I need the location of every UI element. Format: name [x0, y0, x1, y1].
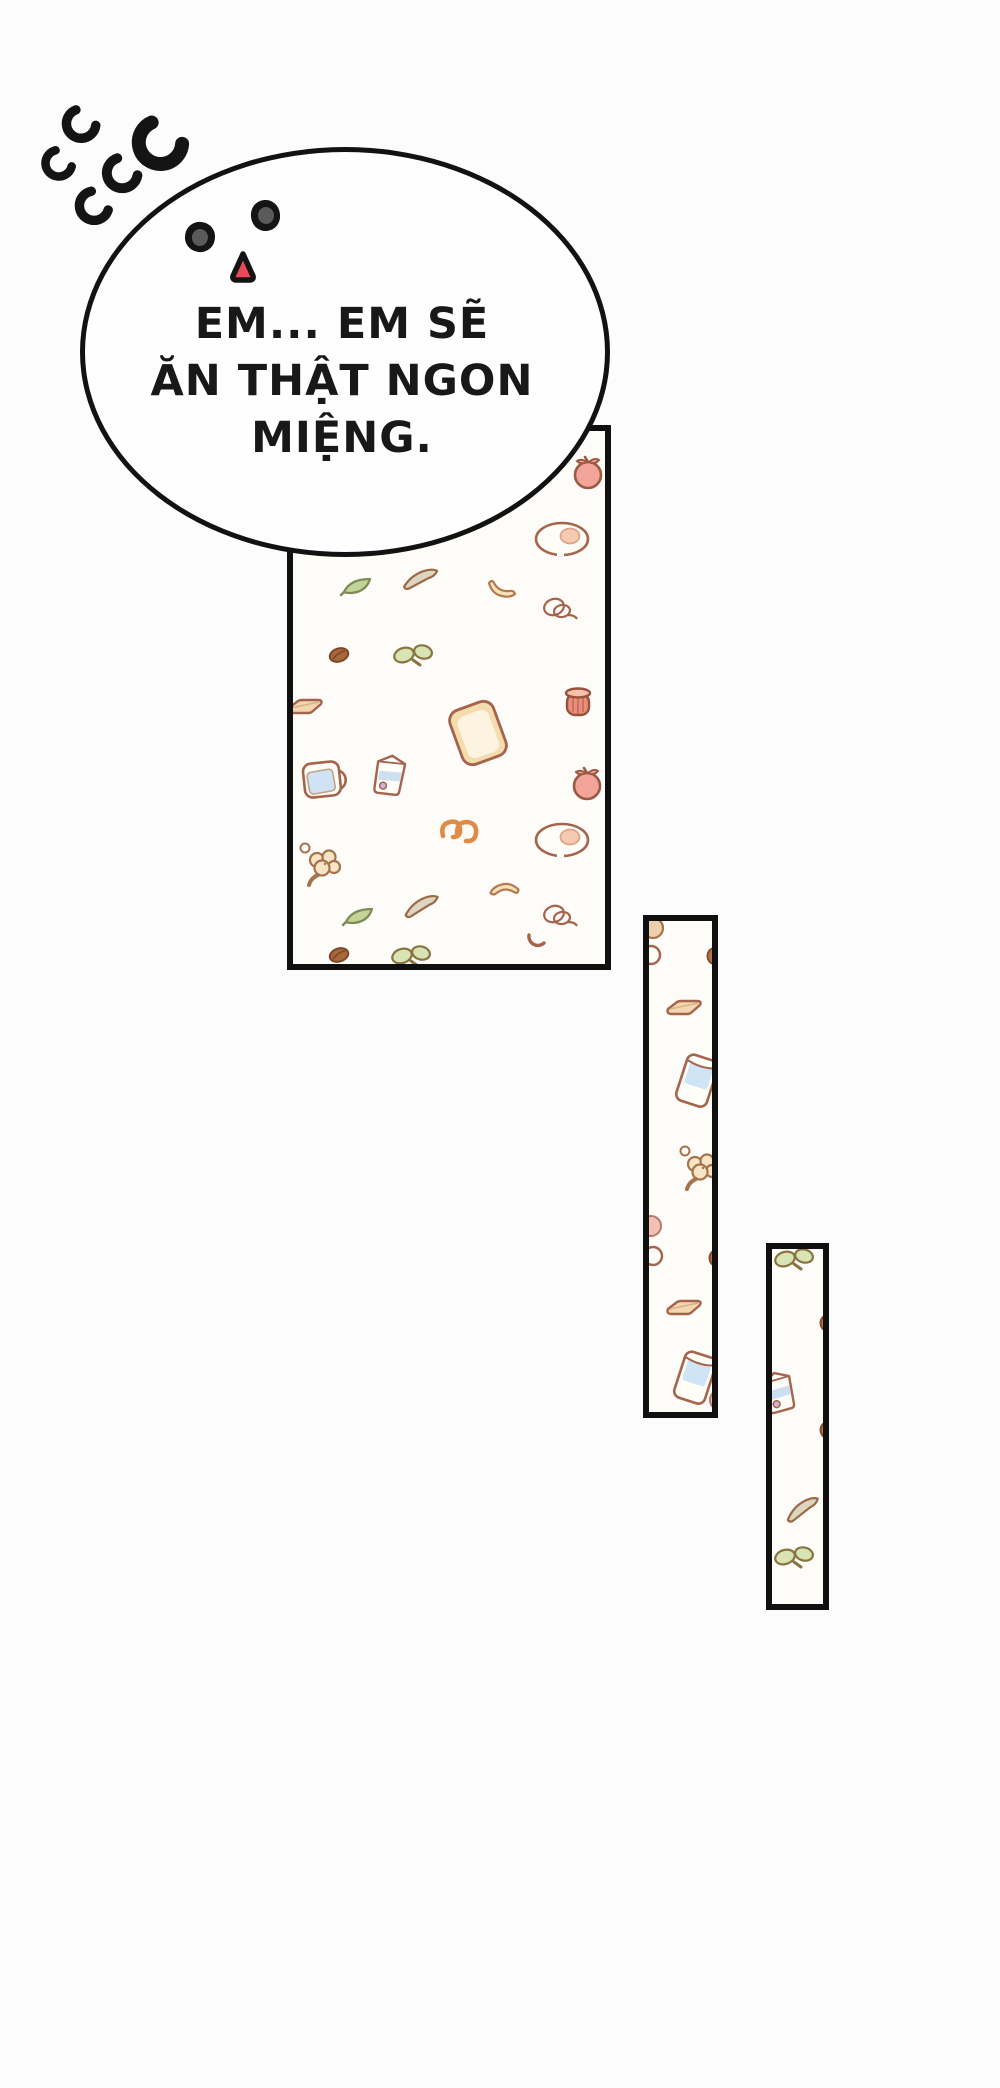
bean-icon — [309, 925, 369, 970]
banana-icon — [474, 560, 534, 620]
sprout-icon — [766, 1243, 826, 1293]
circle-pink-icon — [690, 1370, 718, 1418]
circle-brown-icon — [799, 1293, 829, 1353]
leaf-green-icon — [332, 556, 392, 616]
popcorn-icon — [673, 1140, 718, 1200]
sprout-icon — [383, 930, 443, 970]
bacon-icon — [655, 976, 715, 1036]
bread-icon — [436, 691, 521, 776]
surprised-mouth-icon — [226, 247, 260, 287]
dialogue-line-2: ĂN THẬT NGON — [92, 353, 592, 410]
dialogue-line-3: MIỆNG. — [92, 410, 592, 467]
mug-icon — [294, 747, 360, 813]
food-pattern-panel-tall-right — [766, 1243, 829, 1610]
dialogue-line-1: EM... EM SẼ — [92, 296, 592, 353]
sprout-icon — [766, 1531, 826, 1591]
yarn-icon — [529, 579, 589, 639]
comic-page: EM... EM SẼ ĂN THẬT NGON MIỆNG. — [0, 0, 1000, 2088]
egg-icon — [532, 509, 592, 569]
bacon-icon — [287, 675, 336, 735]
milk-glass-icon — [660, 1043, 718, 1119]
small-curve-icon — [507, 910, 567, 970]
circle-brown-icon — [799, 1400, 829, 1460]
pretzel-icon — [432, 800, 492, 860]
sprout-icon — [385, 629, 445, 689]
right-pupil — [257, 206, 275, 225]
left-pupil — [191, 227, 209, 246]
egg-icon — [532, 810, 592, 870]
knife-icon — [389, 544, 457, 612]
food-pattern-panel-tall-left — [643, 915, 718, 1418]
speech-bubble-text: EM... EM SẼ ĂN THẬT NGON MIỆNG. — [92, 296, 592, 467]
milk-carton-icon — [357, 740, 427, 810]
bacon-icon — [655, 1276, 715, 1336]
jam-jar-icon — [548, 672, 608, 732]
tomato-icon — [557, 753, 611, 813]
